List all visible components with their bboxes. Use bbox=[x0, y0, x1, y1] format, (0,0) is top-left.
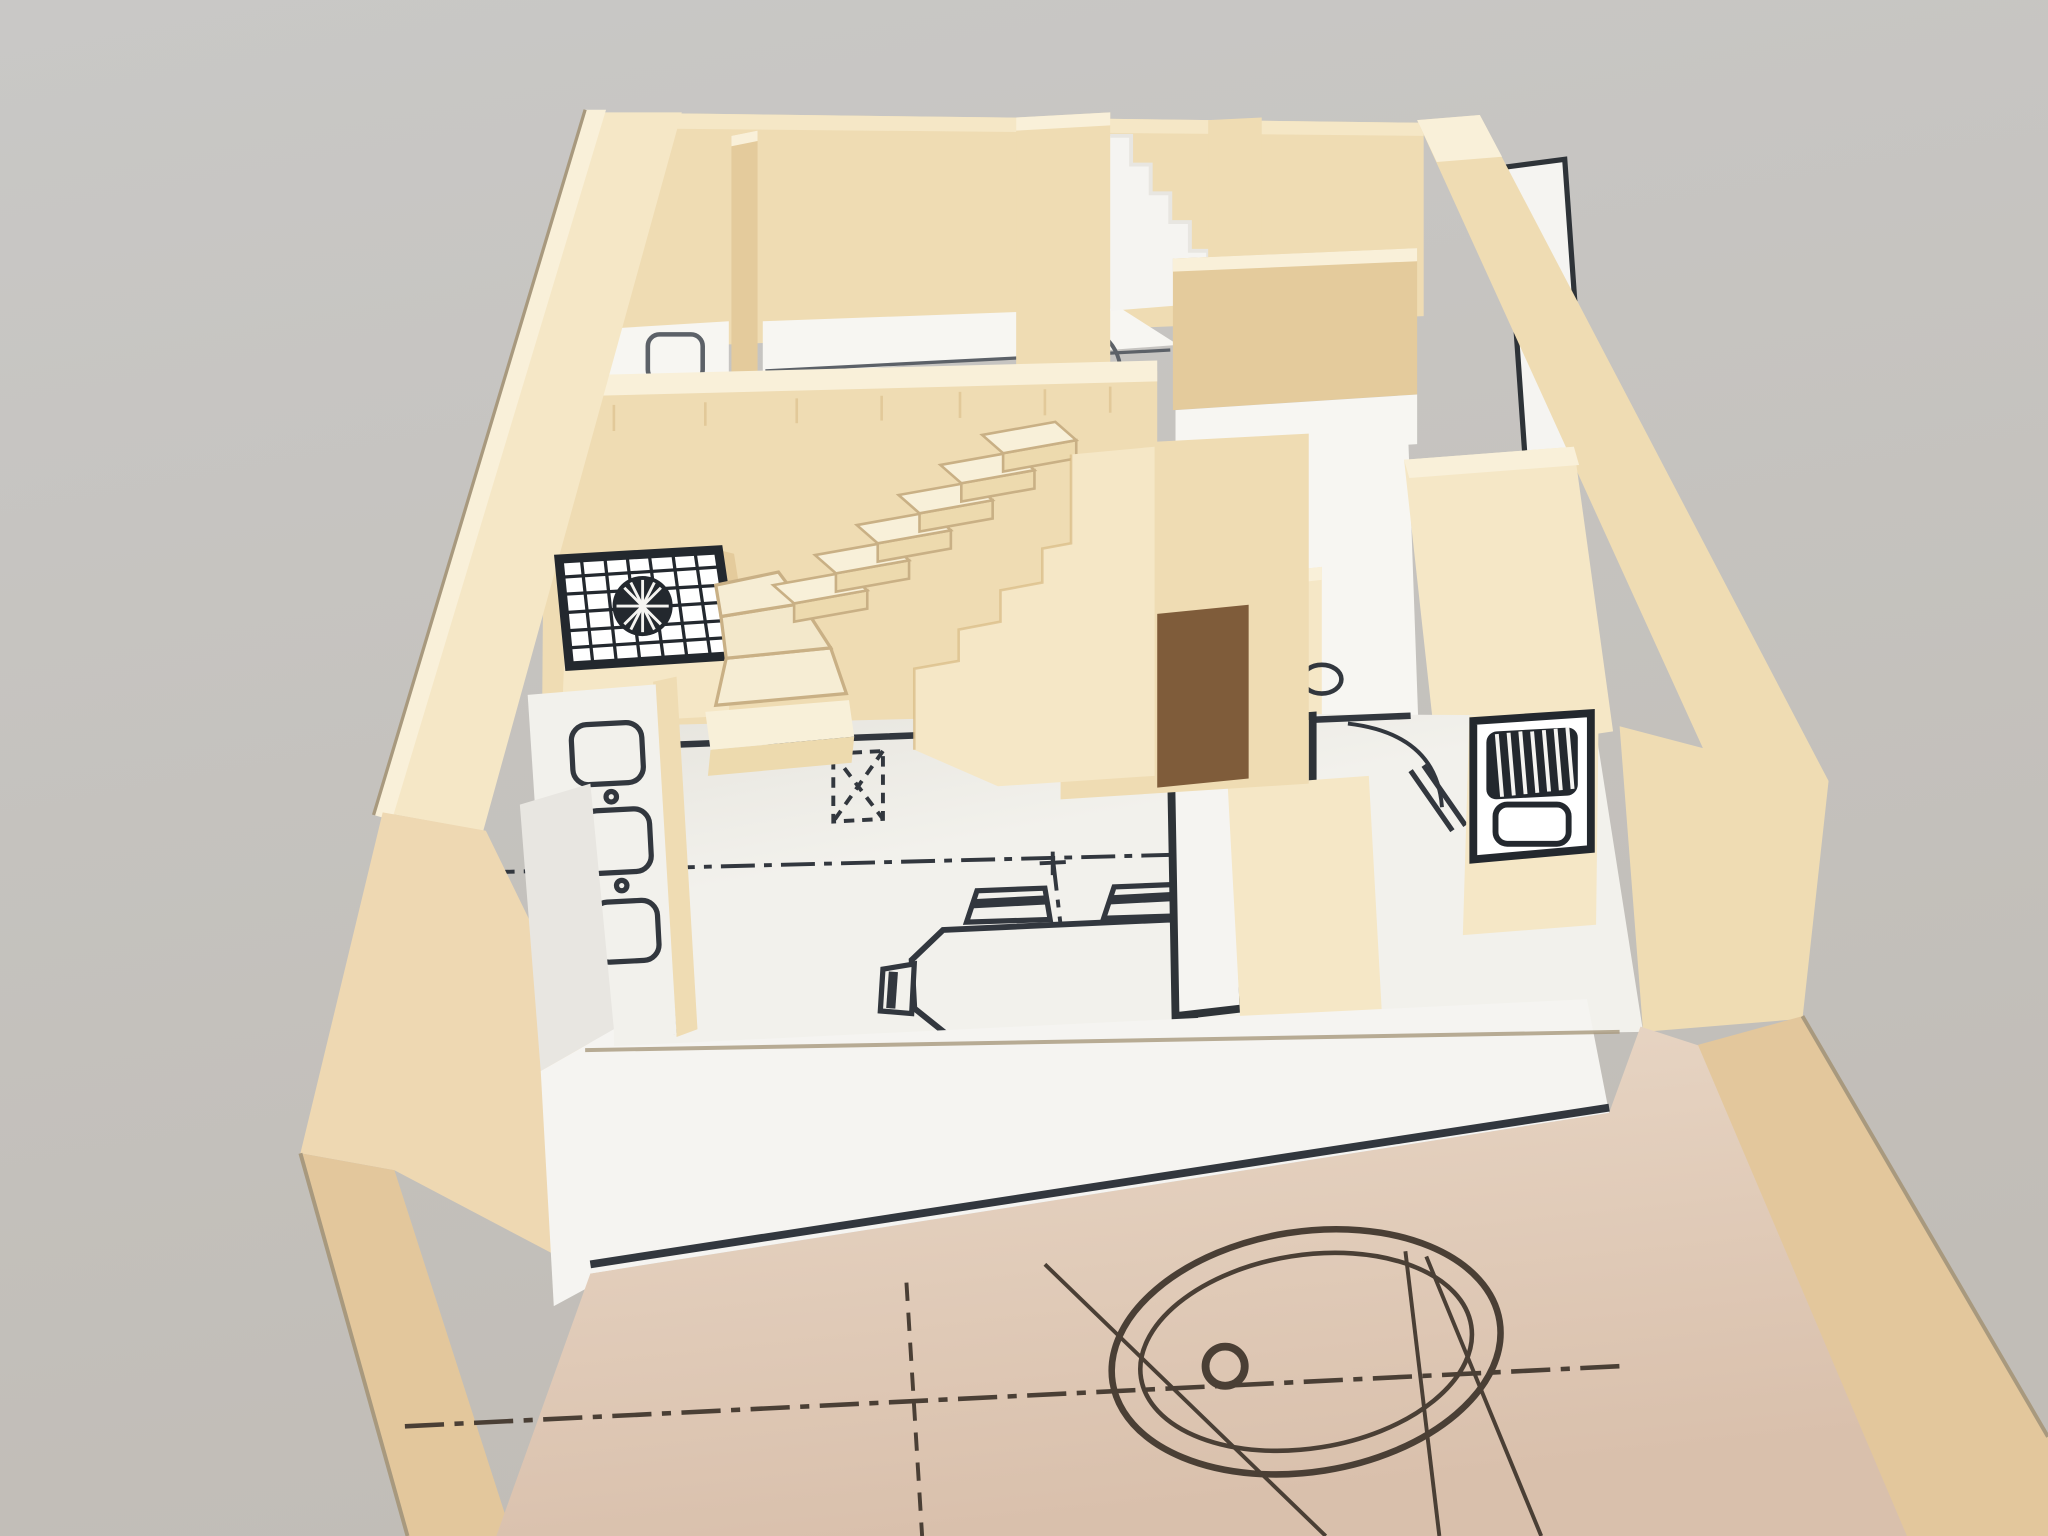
architectural-model-photo bbox=[0, 0, 2048, 1536]
floor-drain-rosette bbox=[613, 576, 673, 636]
kitchen-sink-unit bbox=[1463, 708, 1599, 935]
drainer-hatch bbox=[1486, 727, 1577, 800]
under-stair-doorway bbox=[1157, 605, 1248, 788]
